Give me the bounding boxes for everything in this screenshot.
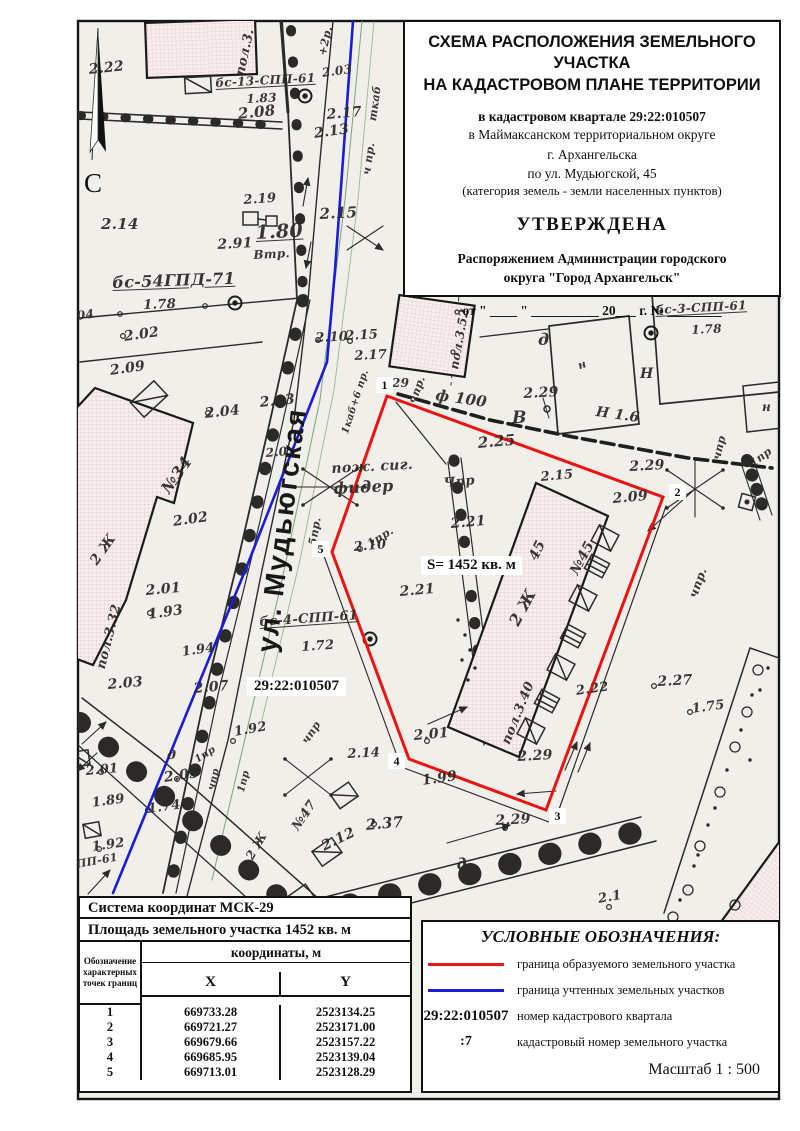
point-number: 5	[80, 1065, 142, 1080]
point-number: 1	[80, 1005, 142, 1020]
scale-label: Масштаб 1 : 500	[648, 1061, 760, 1079]
coord-x: 669733.28	[142, 1005, 281, 1020]
point-number: 2	[80, 1020, 142, 1035]
coord-x: 669721.27	[142, 1020, 281, 1035]
col-y-header: Y	[281, 972, 410, 997]
boundary-point-2: 2	[669, 484, 686, 500]
legend-item-parcel-boundary: граница образуемого земельного участка	[423, 951, 778, 977]
coord-y: 2523171.00	[281, 1020, 410, 1035]
parcel-area-label: S= 1452 кв. м	[421, 556, 522, 575]
title-quarter: в кадастровом квартале 29:22:010507	[405, 109, 779, 125]
col-coordinates-header: координаты, м	[142, 942, 410, 963]
cadastral-scheme-page: 2.22бс-13-СПП-611.832.08пол.3.+2р.2.03тк…	[0, 0, 800, 1131]
legend-item-quarter-number: 29:22:010507 номер кадастрового квартала	[423, 1003, 778, 1029]
col-designation-header: Обозначение характерных точек границ	[80, 942, 142, 1005]
red-line-swatch	[428, 963, 504, 966]
coords-table-body: 1669733.282523134.252669721.272523171.00…	[80, 1005, 410, 1080]
title-approved: УТВЕРЖДЕНА	[405, 214, 779, 236]
legend: УСЛОВНЫЕ ОБОЗНАЧЕНИЯ: граница образуемог…	[421, 920, 780, 1093]
parcel-area-row: Площадь земельного участка 1452 кв. м	[80, 919, 410, 942]
coordinates-table: Система координат МСК-29 Площадь земельн…	[78, 896, 412, 1093]
coord-y: 2523134.25	[281, 1005, 410, 1020]
title-block: СХЕМА РАСПОЛОЖЕНИЯ ЗЕМЕЛЬНОГО УЧАСТКА НА…	[403, 20, 781, 297]
coord-system-label: Система координат МСК-29	[80, 898, 410, 919]
coord-x: 669685.95	[142, 1050, 281, 1065]
coord-x: 669713.01	[142, 1065, 281, 1080]
coord-x: 669679.66	[142, 1035, 281, 1050]
legend-item-cadastre-boundary: граница учтенных земельных участков	[423, 977, 778, 1003]
col-x-header: X	[142, 972, 281, 997]
legend-title: УСЛОВНЫЕ ОБОЗНАЧЕНИЯ:	[423, 927, 778, 947]
point-number: 4	[80, 1050, 142, 1065]
title-approved-by: Распоряжением Администрации городского о…	[405, 250, 779, 288]
coord-y: 2523139.04	[281, 1050, 410, 1065]
boundary-point-1: 1	[376, 377, 393, 393]
blue-line-swatch	[428, 989, 504, 992]
title-city: г. Архангельска	[405, 145, 779, 165]
cadastral-quarter-label: 29:22:010507	[247, 677, 346, 696]
title-date-line: от " ____ " __________ 20___ г. № ______…	[405, 303, 779, 319]
title-category: (категория земель - земли населенных пун…	[405, 184, 779, 199]
boundary-point-4: 4	[388, 753, 405, 769]
point-number: 3	[80, 1035, 142, 1050]
north-label: С	[84, 168, 102, 199]
title-district: в Маймаксанском территориальном округе	[405, 125, 779, 145]
building-top-left	[145, 19, 257, 78]
legend-item-parcel-number: :7 кадастровый номер земельного участка	[423, 1029, 778, 1055]
scheme-title: СХЕМА РАСПОЛОЖЕНИЯ ЗЕМЕЛЬНОГО УЧАСТКА НА…	[405, 32, 779, 96]
parcel-number-swatch: :7	[460, 1034, 472, 1050]
coord-y: 2523128.29	[281, 1065, 410, 1080]
boundary-point-5: 5	[312, 541, 329, 557]
title-street: по ул. Мудьюгской, 45	[405, 164, 779, 184]
quarter-number-swatch: 29:22:010507	[424, 1008, 509, 1025]
coord-y: 2523157.22	[281, 1035, 410, 1050]
boundary-point-3: 3	[549, 808, 566, 824]
